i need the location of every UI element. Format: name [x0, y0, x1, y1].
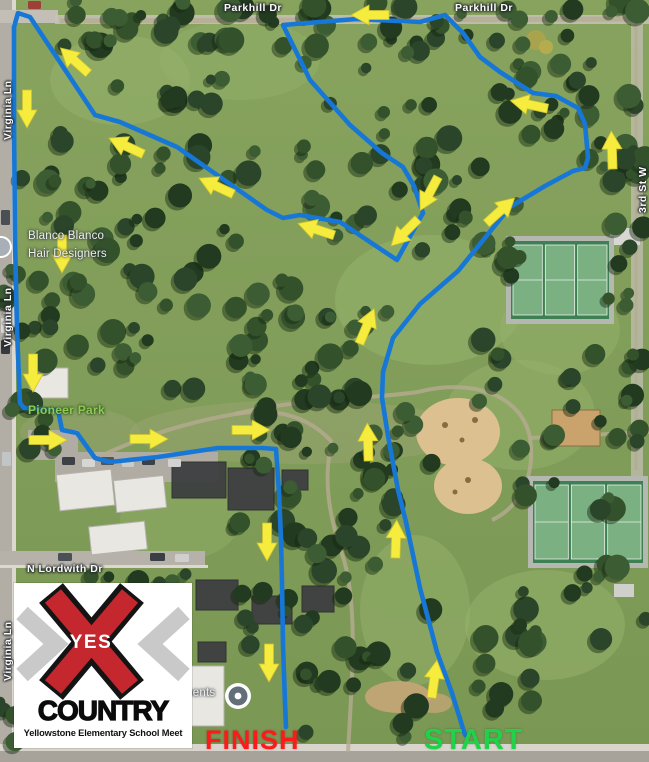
finish-label: FINISH — [205, 725, 300, 756]
direction-arrow — [17, 90, 37, 128]
direction-arrow — [350, 305, 383, 348]
direction-arrow — [29, 430, 67, 450]
direction-arrow — [601, 131, 622, 170]
direction-arrow — [385, 520, 406, 559]
direction-arrow — [105, 129, 148, 163]
logo-subtitle-text: Yellowstone Elementary School Meet — [14, 728, 192, 738]
logo-yes-text: YES — [2, 632, 180, 654]
logo-country-text: COUNTRY — [14, 695, 192, 727]
direction-arrow — [259, 644, 279, 682]
direction-arrow — [257, 523, 277, 561]
direction-arrow — [130, 429, 168, 449]
direction-arrow — [232, 420, 270, 440]
direction-arrow — [52, 235, 72, 273]
direction-arrow — [357, 423, 378, 462]
direction-arrow — [480, 191, 522, 231]
event-logo: YES COUNTRY Yellowstone Elementary Schoo… — [14, 583, 192, 748]
course-map[interactable]: Parkhill DrParkhill DrVirginia LnVirgini… — [0, 0, 649, 762]
start-label: START — [424, 724, 524, 757]
map-pin-icon[interactable] — [225, 683, 251, 709]
direction-arrow — [23, 354, 43, 392]
